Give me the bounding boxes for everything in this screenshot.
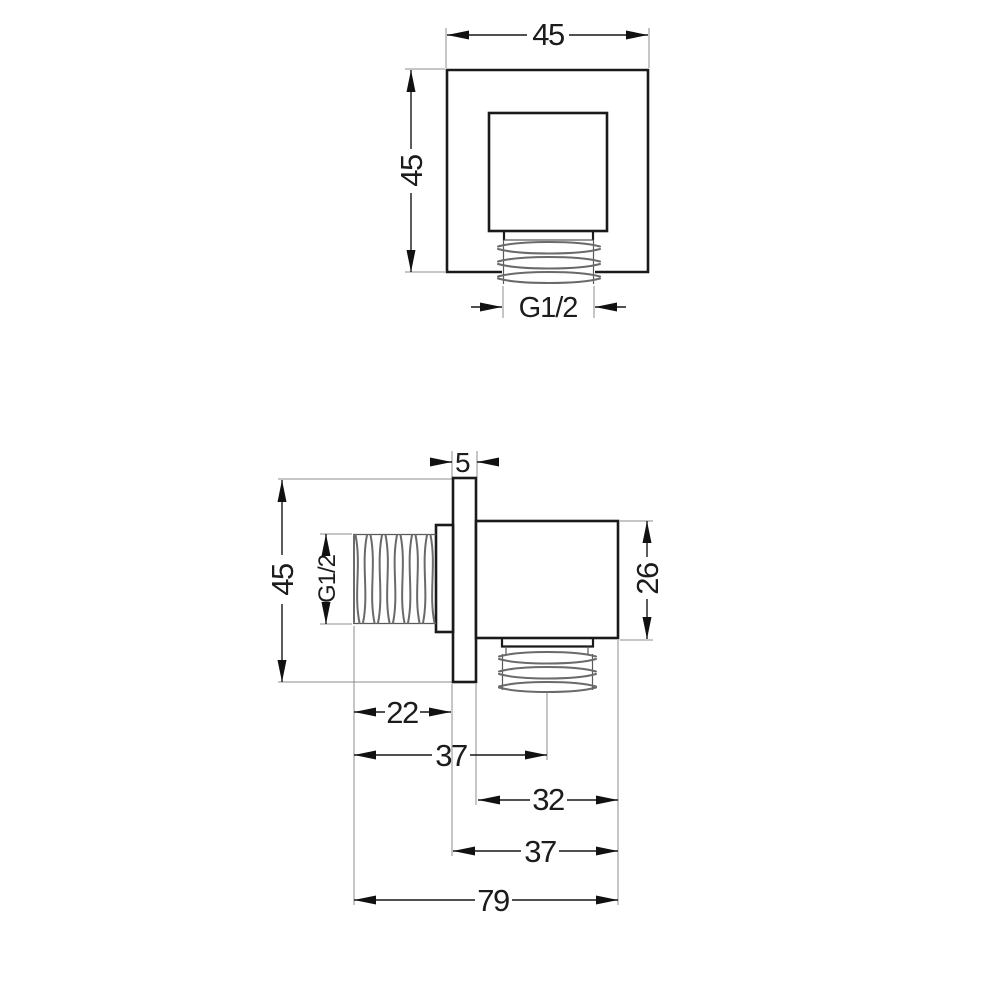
arrowhead — [354, 708, 376, 717]
arrowhead — [322, 602, 331, 624]
drawing-svg: 45 45 G1/2 — [0, 0, 1000, 1000]
arrowhead — [477, 458, 499, 467]
dim-inlet-to-outlet-center: 37 — [354, 738, 547, 773]
inlet-thread-side — [353, 535, 436, 624]
dim-label-top-thread: G1/2 — [519, 292, 578, 324]
dim-label-top-width: 45 — [532, 17, 564, 52]
dim-label-total-depth: 79 — [477, 883, 509, 918]
dim-total-depth: 79 — [354, 883, 618, 918]
dim-plate-to-front: 37 — [453, 834, 618, 869]
arrowhead — [322, 534, 331, 556]
dim-side-height: 45 — [265, 480, 300, 682]
dim-label-plate-thickness: 5 — [455, 447, 470, 478]
arrowhead — [453, 847, 475, 856]
dim-label-body-height: 26 — [630, 563, 665, 595]
dim-inlet-thread: G1/2 — [314, 534, 341, 624]
arrowhead — [643, 617, 652, 639]
dim-inlet-length: 22 — [354, 695, 451, 730]
arrowhead — [643, 521, 652, 543]
top-view: 45 45 G1/2 — [394, 17, 649, 324]
arrowhead — [447, 31, 469, 40]
dim-label-top-height: 45 — [394, 155, 429, 187]
arrowhead — [596, 796, 618, 805]
technical-drawing-canvas: 45 45 G1/2 — [0, 0, 1000, 1000]
arrowhead — [596, 847, 618, 856]
dim-body-height: 26 — [630, 521, 665, 639]
arrowhead — [407, 250, 416, 272]
side-view: 5 45 G1/2 26 — [265, 447, 665, 918]
arrowhead — [429, 708, 451, 717]
dim-label-plate-to-front: 37 — [524, 834, 556, 869]
arrowhead — [354, 751, 376, 760]
arrowhead — [478, 796, 500, 805]
dim-label-body-depth: 32 — [532, 782, 564, 817]
arrowhead — [595, 303, 617, 312]
arrowhead — [278, 660, 287, 682]
arrowhead — [278, 480, 287, 502]
dim-label-inlet-length: 22 — [386, 695, 418, 730]
inlet-collar — [436, 525, 453, 632]
arrowhead — [354, 896, 376, 905]
arrowhead — [596, 896, 618, 905]
dim-body-depth: 32 — [478, 782, 618, 817]
dim-top-height: 45 — [394, 70, 429, 272]
dim-label-side-height: 45 — [265, 564, 300, 596]
outlet-flange — [502, 639, 593, 647]
dim-top-thread: G1/2 — [471, 292, 626, 324]
dim-label-inlet-to-outlet-center: 37 — [435, 738, 467, 773]
dim-label-inlet-thread: G1/2 — [314, 554, 341, 603]
housing-square — [489, 113, 607, 231]
outlet-thread-side — [499, 647, 596, 693]
arrowhead — [430, 458, 452, 467]
arrowhead — [480, 303, 502, 312]
arrowhead — [407, 70, 416, 92]
arrowhead — [525, 751, 547, 760]
dim-top-width: 45 — [447, 17, 648, 52]
arrowhead — [626, 31, 648, 40]
dim-plate-thickness: 5 — [430, 447, 499, 478]
wall-plate — [453, 478, 476, 682]
elbow-body — [476, 521, 618, 638]
